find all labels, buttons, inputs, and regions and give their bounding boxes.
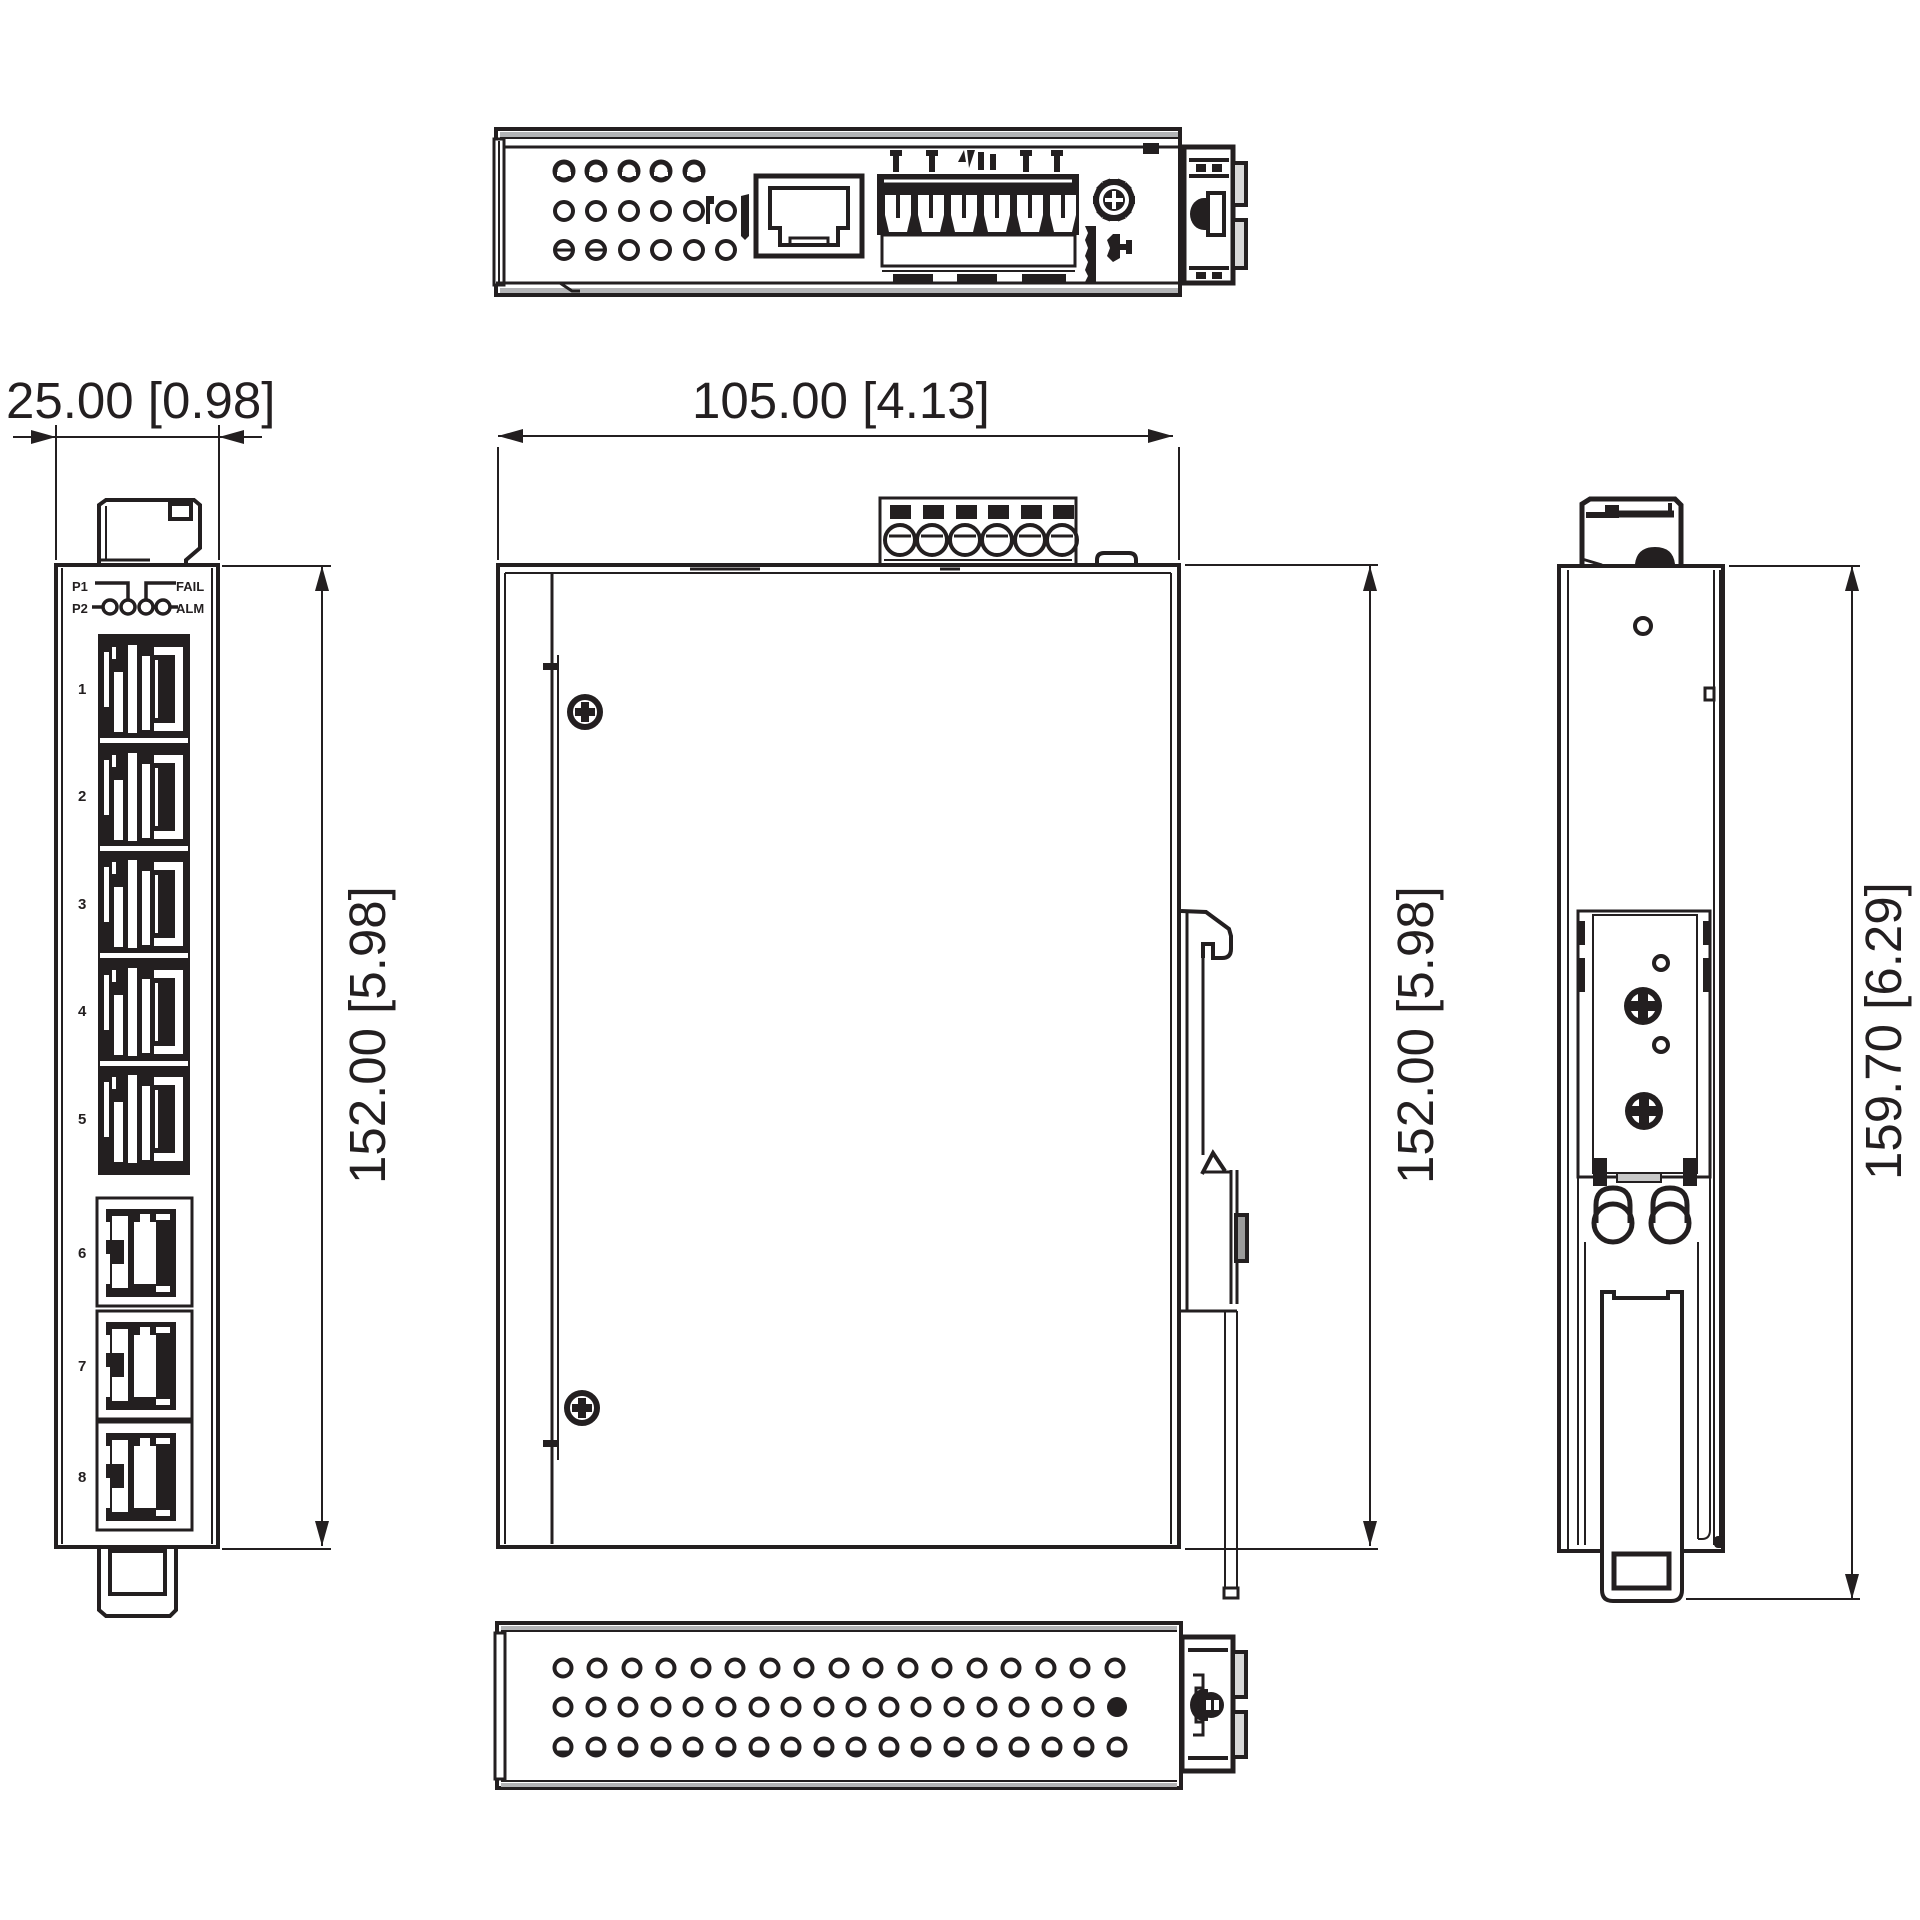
svg-text:P1: P1 <box>72 579 88 594</box>
svg-text:ALM: ALM <box>176 601 204 616</box>
svg-text:2: 2 <box>78 788 86 805</box>
svg-text:8: 8 <box>78 1469 86 1486</box>
svg-text:5: 5 <box>78 1111 86 1128</box>
svg-text:152.00 [5.98]: 152.00 [5.98] <box>1387 886 1444 1184</box>
svg-text:3: 3 <box>78 896 86 913</box>
svg-text:25.00 [0.98]: 25.00 [0.98] <box>6 372 275 429</box>
svg-text:1: 1 <box>78 681 86 698</box>
svg-text:6: 6 <box>78 1245 86 1262</box>
svg-text:4: 4 <box>78 1003 87 1020</box>
svg-text:105.00 [4.13]: 105.00 [4.13] <box>692 372 990 429</box>
svg-text:7: 7 <box>78 1358 86 1375</box>
svg-text:FAIL: FAIL <box>176 579 204 594</box>
svg-text:P2: P2 <box>72 601 88 616</box>
svg-text:152.00 [5.98]: 152.00 [5.98] <box>339 886 396 1184</box>
svg-text:159.70 [6.29]: 159.70 [6.29] <box>1855 882 1912 1180</box>
